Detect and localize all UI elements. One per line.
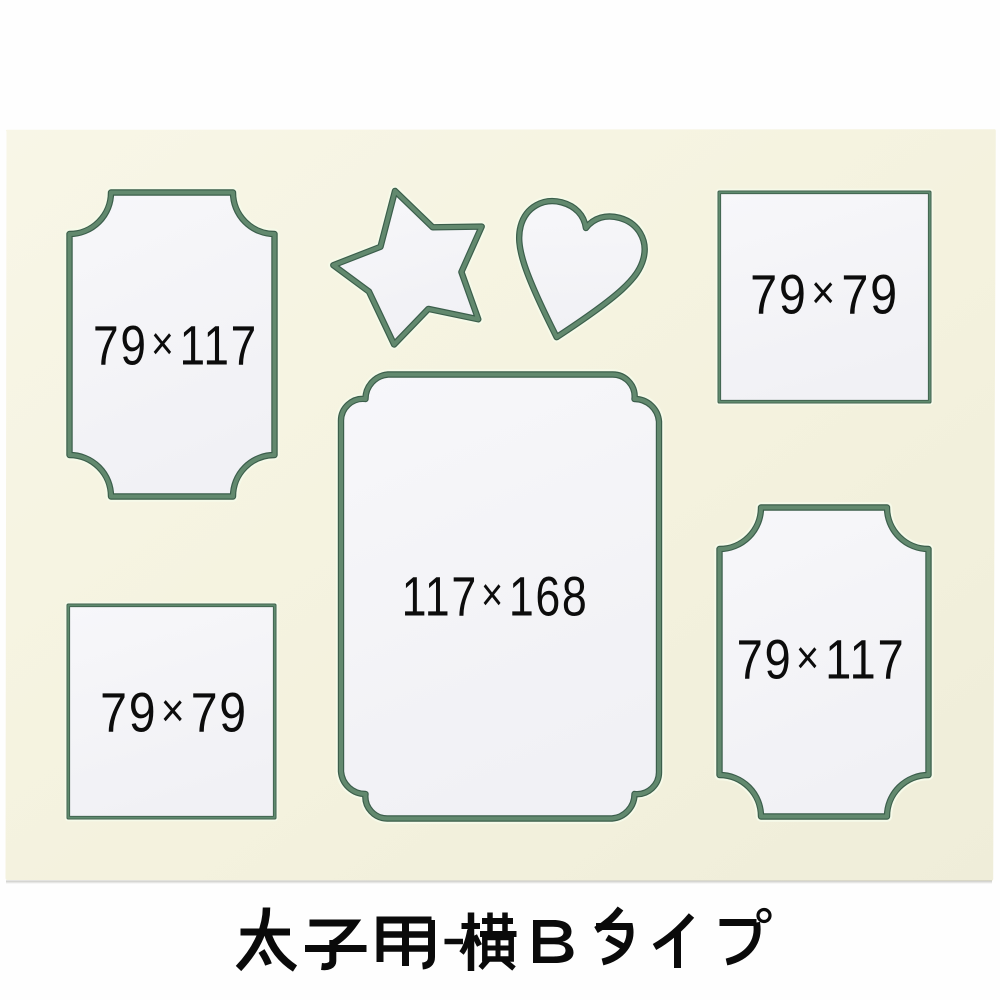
svg-text:79×79: 79×79 [100,682,248,744]
svg-text:117×168: 117×168 [402,565,589,628]
svg-text:79×79: 79×79 [750,265,899,327]
